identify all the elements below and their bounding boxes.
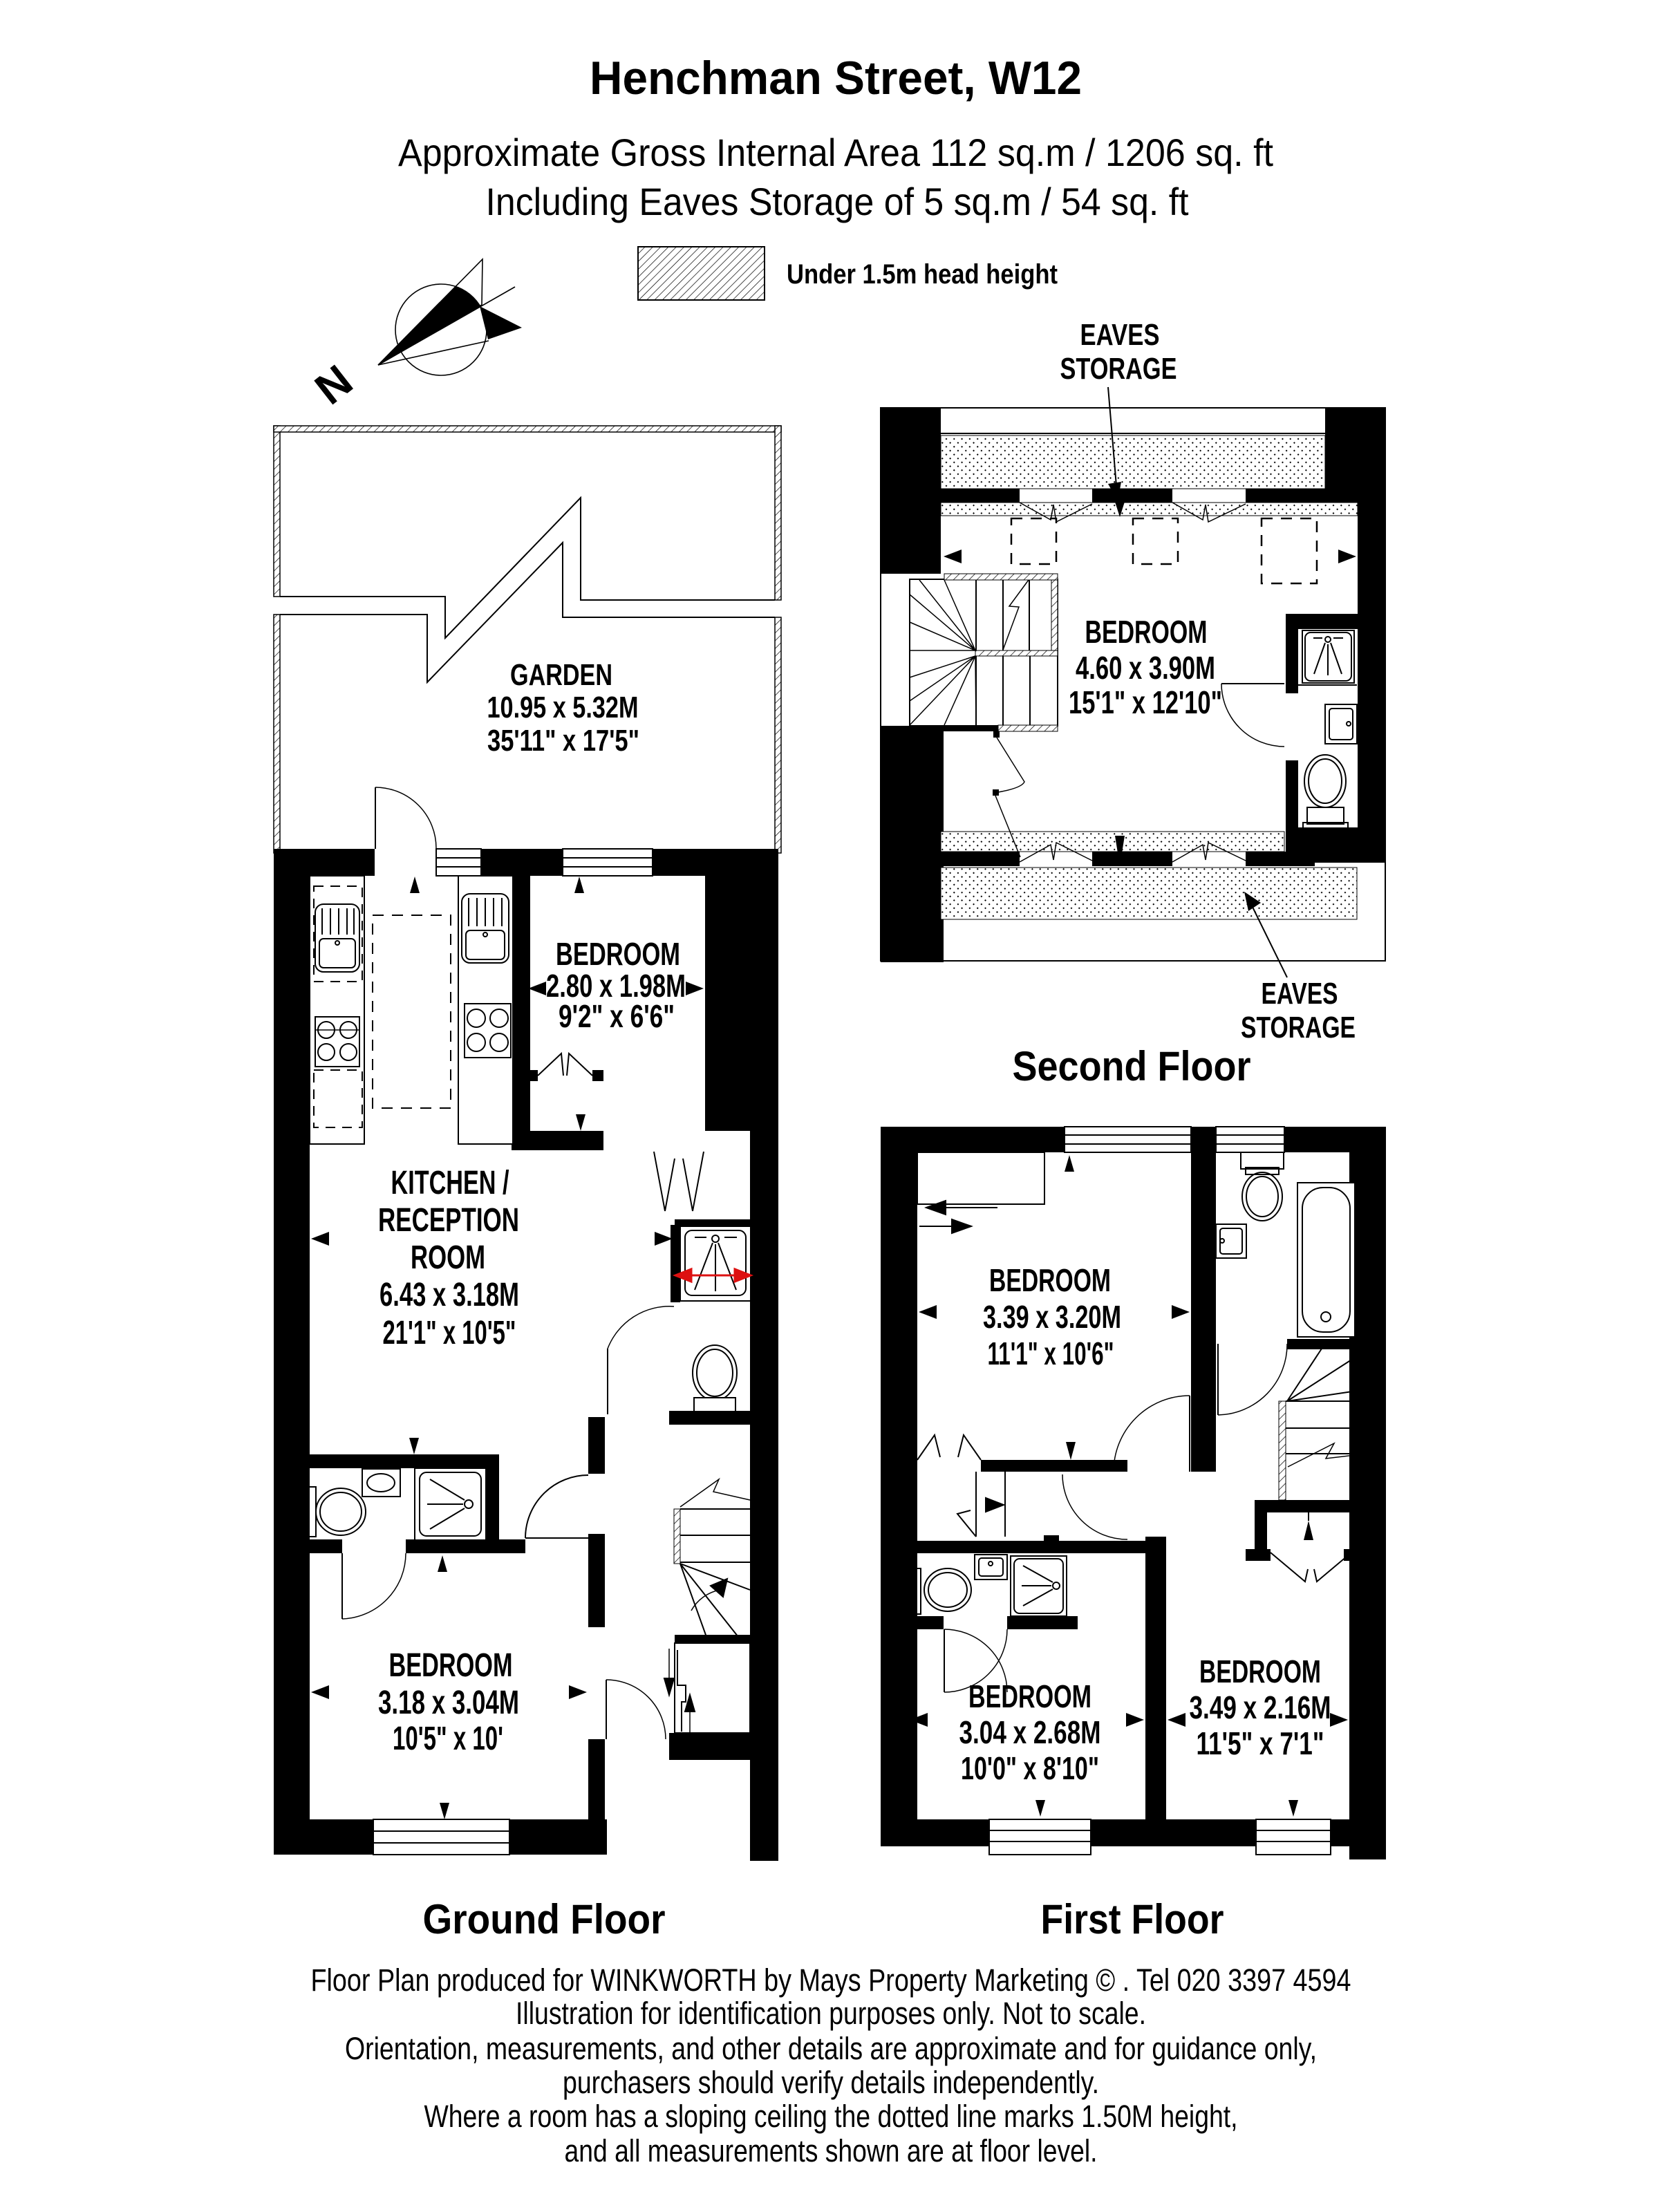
svg-text:GARDEN: GARDEN [510, 658, 612, 692]
svg-text:Henchman Street, W12: Henchman Street, W12 [590, 52, 1082, 104]
svg-text:Illustration for identificatio: Illustration for identification purposes… [516, 1996, 1146, 2031]
svg-text:9'2" x 6'6": 9'2" x 6'6" [559, 998, 675, 1034]
svg-text:Second Floor: Second Floor [1013, 1043, 1251, 1089]
svg-text:purchasers should verify detai: purchasers should verify details indepen… [563, 2065, 1099, 2100]
svg-text:10.95 x 5.32M: 10.95 x 5.32M [487, 691, 639, 724]
svg-text:10'0" x 8'10": 10'0" x 8'10" [961, 1750, 1099, 1786]
svg-text:Under 1.5m head height: Under 1.5m head height [787, 259, 1058, 290]
svg-text:KITCHEN /: KITCHEN / [391, 1165, 509, 1201]
svg-text:Approximate Gross Internal Are: Approximate Gross Internal Area 112 sq.m… [398, 131, 1273, 174]
svg-text:STORAGE: STORAGE [1241, 1011, 1356, 1044]
svg-text:Floor Plan produced for WINKWO: Floor Plan produced for WINKWORTH by May… [311, 1962, 1351, 1998]
svg-text:4.60 x 3.90M: 4.60 x 3.90M [1076, 650, 1215, 686]
svg-text:Ground Floor: Ground Floor [423, 1896, 666, 1942]
svg-text:3.18 x 3.04M: 3.18 x 3.04M [378, 1685, 519, 1721]
svg-text:Including Eaves Storage of 5 s: Including Eaves Storage of 5 sq.m / 54 s… [486, 180, 1189, 223]
svg-text:21'1" x 10'5": 21'1" x 10'5" [383, 1315, 516, 1351]
svg-text:First Floor: First Floor [1041, 1896, 1224, 1942]
svg-text:STORAGE: STORAGE [1060, 352, 1177, 386]
svg-text:3.39 x 3.20M: 3.39 x 3.20M [983, 1299, 1121, 1335]
svg-text:35'11" x 17'5": 35'11" x 17'5" [487, 724, 639, 758]
svg-text:3.04 x 2.68M: 3.04 x 2.68M [959, 1714, 1101, 1750]
svg-text:BEDROOM: BEDROOM [1199, 1653, 1321, 1689]
svg-text:EAVES: EAVES [1080, 318, 1160, 352]
svg-text:10'5" x 10': 10'5" x 10' [393, 1721, 503, 1757]
svg-text:ROOM: ROOM [411, 1239, 485, 1276]
svg-text:11'1" x 10'6": 11'1" x 10'6" [988, 1335, 1114, 1371]
svg-text:BEDROOM: BEDROOM [556, 936, 680, 972]
svg-text:BEDROOM: BEDROOM [968, 1678, 1091, 1714]
svg-text:BEDROOM: BEDROOM [389, 1647, 513, 1684]
svg-text:and all measurements shown are: and all measurements shown are at floor … [565, 2133, 1098, 2168]
svg-text:15'1" x 12'10": 15'1" x 12'10" [1069, 684, 1222, 720]
svg-text:Where a room has a sloping cei: Where a room has a sloping ceiling the d… [424, 2099, 1238, 2134]
svg-text:BEDROOM: BEDROOM [989, 1262, 1111, 1298]
svg-text:3.49 x 2.16M: 3.49 x 2.16M [1190, 1689, 1331, 1725]
svg-text:11'5" x 7'1": 11'5" x 7'1" [1197, 1725, 1324, 1761]
svg-text:EAVES: EAVES [1262, 977, 1338, 1011]
svg-text:6.43 x 3.18M: 6.43 x 3.18M [379, 1277, 519, 1313]
svg-text:Orientation, measurements, and: Orientation, measurements, and other det… [345, 2031, 1317, 2066]
svg-text:RECEPTION: RECEPTION [378, 1202, 519, 1239]
svg-text:BEDROOM: BEDROOM [1085, 614, 1208, 650]
